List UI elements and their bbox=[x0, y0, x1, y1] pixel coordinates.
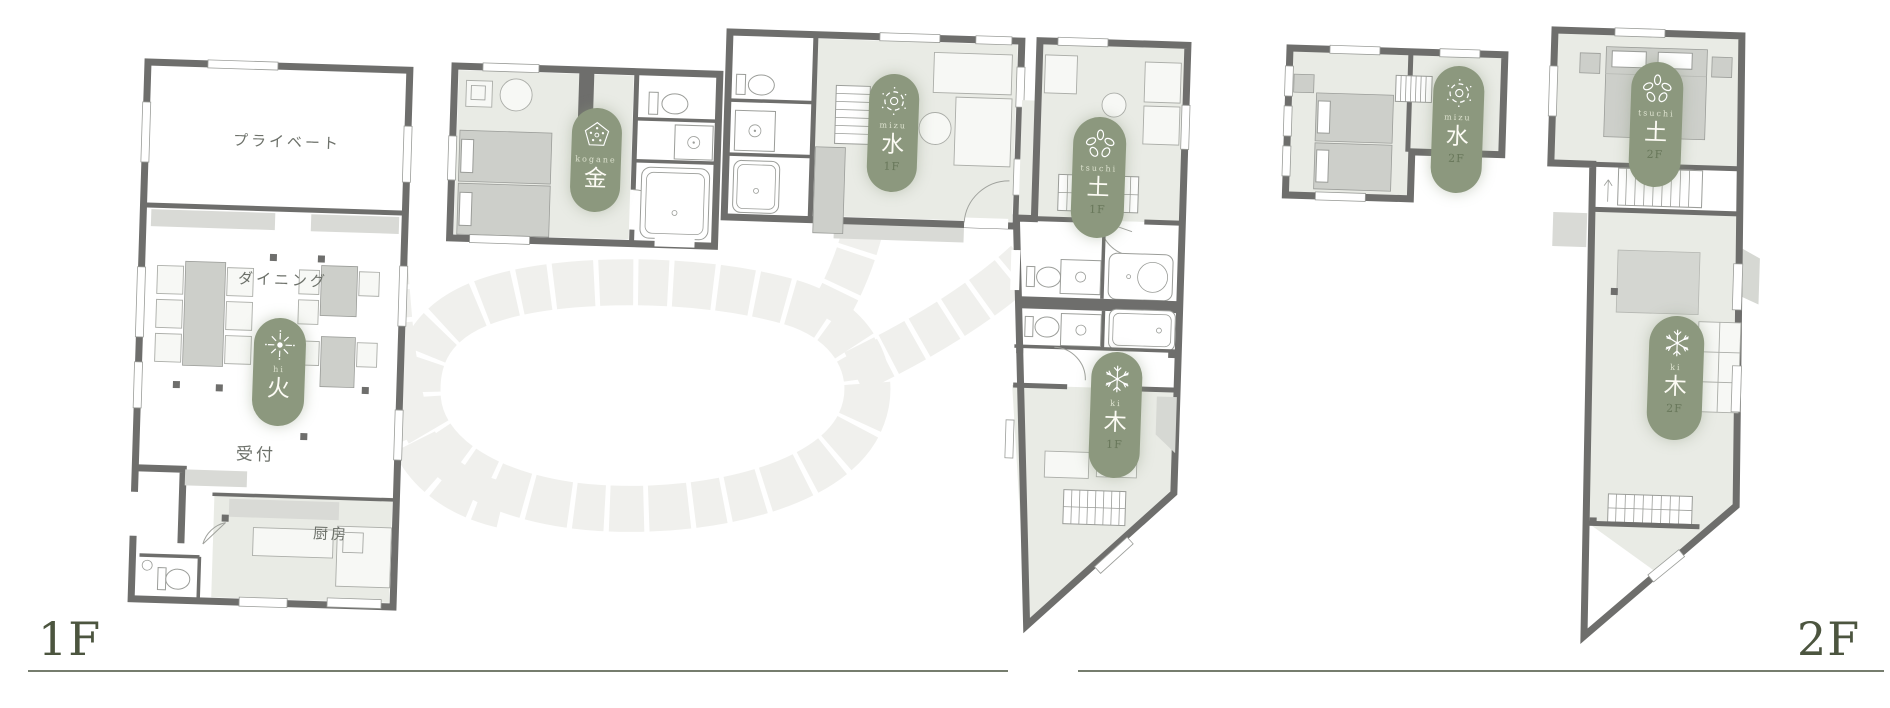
badge-roman: tsuchi bbox=[1080, 164, 1117, 173]
badge-roman: mizu bbox=[879, 122, 907, 131]
tree-icon bbox=[1660, 326, 1693, 359]
staircase bbox=[1063, 490, 1126, 526]
rug bbox=[1616, 250, 1700, 315]
badge-floor: 2F bbox=[1666, 403, 1683, 415]
tree-icon bbox=[1100, 362, 1133, 395]
badge-floor: 1F bbox=[883, 161, 900, 173]
badge-tsuchi-1f: tsuchi 土 1F bbox=[1070, 116, 1127, 239]
badge-ki-2f: ki 木 2F bbox=[1646, 315, 1705, 441]
badge-kanji: 木 bbox=[1663, 375, 1687, 401]
badge-kanji: 水 bbox=[1445, 125, 1469, 151]
badge-floor: 1F bbox=[1089, 204, 1106, 216]
badge-kanji: 木 bbox=[1103, 411, 1127, 437]
label-private-room: プライベート bbox=[233, 129, 342, 154]
stone-garden-path bbox=[384, 226, 1026, 509]
badge-kanji: 土 bbox=[1086, 176, 1110, 202]
badge-kanji: 土 bbox=[1644, 121, 1668, 147]
badge-mizu-1f: mizu 水 1F bbox=[866, 73, 920, 193]
badge-tsuchi-2f: tsuchi 土 2F bbox=[1628, 61, 1684, 188]
cabinet bbox=[813, 147, 846, 234]
badge-floor: 1F bbox=[1106, 439, 1123, 451]
badge-roman: ki bbox=[1670, 364, 1682, 372]
bathtub bbox=[640, 167, 710, 240]
badge-floor: 2F bbox=[1646, 149, 1663, 161]
badge-mizu-2f: mizu 水 2F bbox=[1430, 65, 1485, 194]
badge-roman: mizu bbox=[1444, 114, 1472, 123]
badge-kogane-1f: kogane 金 bbox=[569, 107, 623, 213]
toilet bbox=[736, 74, 775, 95]
badge-roman: ki bbox=[1110, 400, 1122, 408]
earth-icon bbox=[1641, 72, 1674, 105]
water-icon bbox=[878, 84, 911, 117]
toilet bbox=[649, 92, 689, 115]
badge-kanji: 火 bbox=[266, 377, 290, 403]
balcony-deck bbox=[1552, 212, 1587, 247]
floor-title-2f: 2F bbox=[1797, 616, 1860, 662]
fire-icon bbox=[263, 328, 296, 361]
badge-floor: 2F bbox=[1448, 153, 1465, 165]
badge-roman: tsuchi bbox=[1638, 109, 1675, 118]
staircase bbox=[1395, 75, 1432, 102]
label-kitchen: 厨房 bbox=[313, 522, 350, 544]
badge-kanji: 水 bbox=[881, 133, 905, 159]
badge-roman: kogane bbox=[575, 155, 617, 164]
sink bbox=[674, 125, 713, 160]
label-reception: 受付 bbox=[236, 439, 277, 465]
staircase bbox=[1608, 494, 1693, 525]
badge-hi-1f: hi 火 bbox=[251, 317, 307, 427]
floorplan-canvas: プライベート ダイニング 受付 厨房 hi 火 kogane 金 mizu 水 … bbox=[0, 0, 1890, 708]
floor-divider-2f bbox=[1078, 670, 1884, 672]
bathtub bbox=[732, 160, 780, 213]
badge-roman: hi bbox=[273, 366, 285, 374]
label-dining-room: ダイニング bbox=[238, 267, 329, 291]
floor-title-1f: 1F bbox=[38, 616, 101, 662]
badge-ki-1f: ki 木 1F bbox=[1088, 351, 1143, 479]
badge-kanji: 金 bbox=[583, 167, 607, 193]
sink bbox=[734, 110, 775, 151]
water-icon bbox=[1442, 76, 1475, 109]
staircase bbox=[835, 85, 871, 144]
floor-divider-1f bbox=[28, 670, 1008, 672]
earth-icon bbox=[1083, 127, 1116, 160]
gold-icon bbox=[580, 118, 613, 151]
